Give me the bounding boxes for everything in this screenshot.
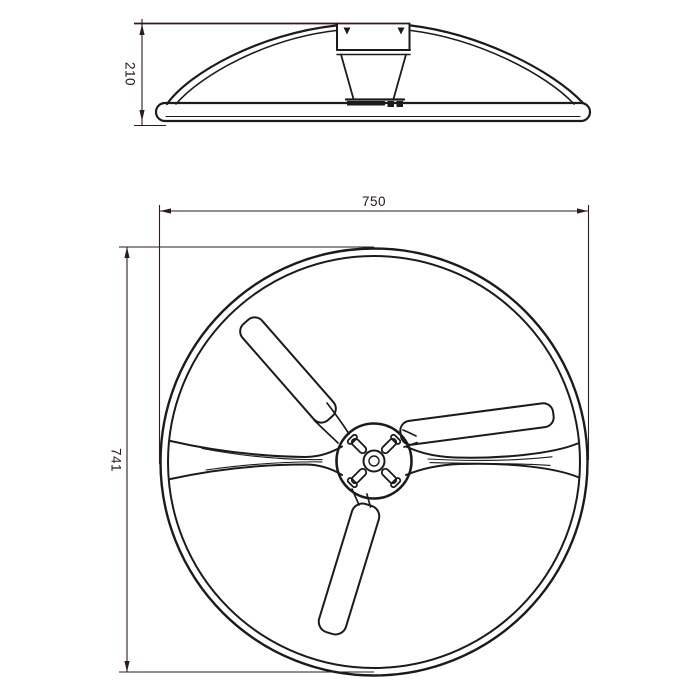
neck-foot-block-1	[388, 101, 395, 107]
blade-upper-left-neck-line-2	[314, 420, 338, 443]
dim-741-label: 741	[108, 448, 123, 472]
left-arm-bottom-edge	[171, 465, 343, 480]
side-view: 210	[122, 19, 590, 126]
side-dome	[167, 26, 583, 105]
plan-hub	[337, 424, 412, 499]
plan-blades	[236, 313, 555, 637]
hub-slot-icon	[380, 467, 397, 484]
right-arm-top-edge	[406, 444, 578, 458]
neck-taper-left-edge	[341, 55, 354, 100]
ring-inner-circle	[168, 256, 580, 668]
dim-741-arrow-down-icon	[124, 661, 129, 672]
plan-outer-ring	[161, 249, 588, 676]
hub-rim-mark-icon	[347, 434, 358, 445]
base-bar-outline	[156, 103, 590, 121]
hub-slot-icon	[380, 437, 397, 454]
neck-taper-right-edge	[394, 55, 407, 100]
hub-cross-slots	[350, 437, 398, 485]
neck-foot-block-2	[397, 101, 404, 107]
dim-210-arrow-up-icon	[139, 24, 144, 35]
technical-drawing: 210	[0, 0, 700, 700]
hub-rim-marks	[347, 434, 401, 488]
hub-slot-icon	[350, 437, 367, 454]
dimension-side-height: 210	[122, 19, 410, 126]
dome-left-outer-curve	[167, 26, 336, 105]
hub-rim-mark-icon	[390, 434, 401, 445]
right-arm-bottom-edge	[406, 464, 579, 478]
plan-support-arms	[171, 441, 580, 479]
dome-right-outer-curve	[411, 26, 583, 104]
blade-upper-left	[236, 313, 340, 426]
hub-slot-icon	[350, 467, 367, 484]
side-mounting-neck	[337, 24, 410, 108]
drawing-canvas: 210	[0, 0, 700, 700]
hub-center-ring	[364, 451, 385, 472]
dim-750-arrow-left-icon	[160, 208, 171, 213]
blade-bottom	[316, 501, 382, 637]
dome-left-inner-curve	[176, 31, 336, 105]
dim-750-arrow-right-icon	[577, 208, 588, 213]
blade-right-neck-line-1	[403, 430, 416, 436]
hub-center-bore	[369, 456, 379, 466]
ring-outer-circle	[161, 249, 588, 676]
neck-foot-bar	[347, 101, 385, 106]
dim-210-label: 210	[122, 62, 137, 86]
side-base-bar	[156, 103, 590, 121]
screw-mark-right-icon	[398, 28, 405, 35]
dimension-plan-height: 741	[108, 247, 374, 672]
blade-right	[399, 402, 555, 446]
plan-view: 750 741	[108, 194, 588, 676]
dim-210-arrow-down-icon	[139, 110, 144, 121]
left-arm-top-edge	[171, 441, 343, 457]
hub-circle	[337, 424, 412, 499]
screw-mark-left-icon	[344, 28, 351, 35]
dome-right-inner-curve	[411, 31, 574, 105]
dim-750-label: 750	[362, 194, 386, 209]
dim-741-arrow-up-icon	[124, 247, 129, 258]
